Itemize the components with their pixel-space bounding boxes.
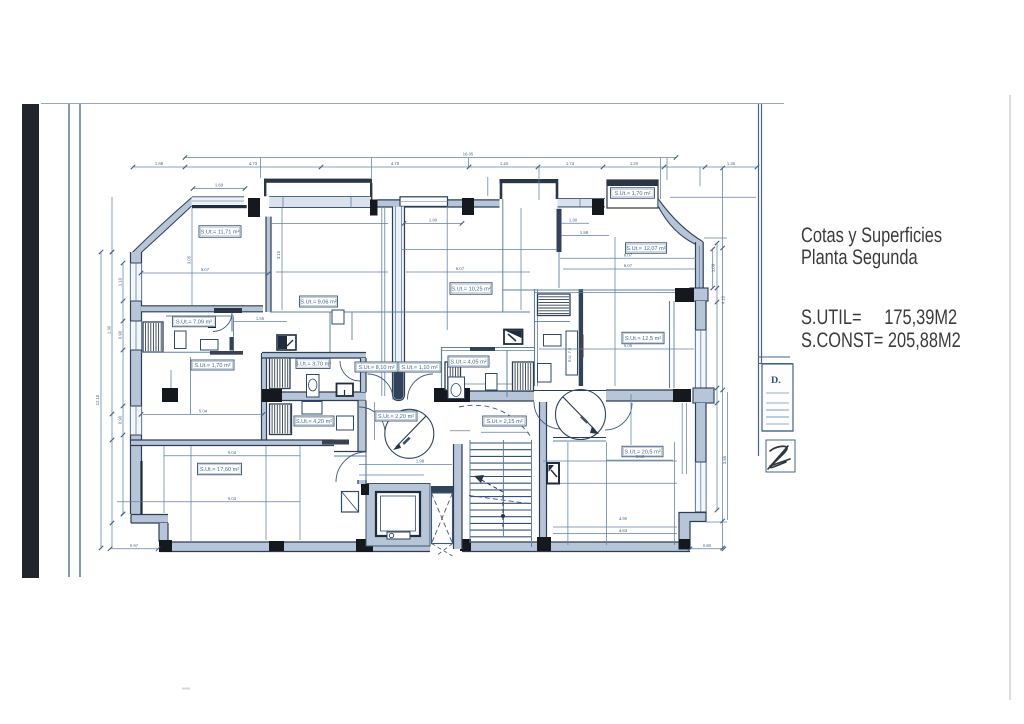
svg-text:0.97: 0.97 — [130, 543, 139, 548]
svg-text:1.08: 1.08 — [711, 263, 716, 272]
svg-text:S.Ut.= 1,70 m²: S.Ut.= 1,70 m² — [194, 363, 230, 369]
svg-text:S.Ut.= 10,25 m²: S.Ut.= 10,25 m² — [451, 287, 490, 293]
svg-text:S.Ut.= 7,09 m²: S.Ut.= 7,09 m² — [176, 320, 212, 326]
svg-text:4.90: 4.90 — [619, 516, 628, 521]
svg-text:1.55: 1.55 — [256, 316, 265, 321]
svg-text:S.Ut.= 9,06 m²: S.Ut.= 9,06 m² — [300, 300, 336, 306]
svg-text:S.Ut.= 4,05 m²: S.Ut.= 4,05 m² — [450, 360, 486, 366]
svg-text:6.07: 6.07 — [624, 263, 633, 268]
svg-text:1.98: 1.98 — [416, 459, 425, 464]
svg-text:2.92: 2.92 — [636, 454, 645, 459]
svg-text:1.60: 1.60 — [215, 183, 224, 188]
svg-text:3.95: 3.95 — [722, 455, 727, 464]
svg-text:3.15: 3.15 — [276, 250, 281, 259]
svg-text:5.04: 5.04 — [199, 409, 208, 414]
svg-text:6.07: 6.07 — [456, 266, 465, 271]
svg-text:1.74: 1.74 — [566, 161, 575, 166]
svg-text:5.07: 5.07 — [201, 267, 210, 272]
svg-text:16.05: 16.05 — [463, 152, 474, 157]
svg-text:4.63: 4.63 — [619, 528, 628, 533]
svg-text:5.04: 5.04 — [228, 450, 237, 455]
svg-text:3.05: 3.05 — [187, 255, 192, 264]
svg-text:6.07: 6.07 — [624, 252, 633, 257]
svg-text:12.10: 12.10 — [95, 394, 100, 405]
svg-text:0.90: 0.90 — [118, 415, 123, 424]
svg-text:1.90: 1.90 — [429, 218, 438, 223]
svg-text:S.Ut.= 3,70 m²: S.Ut.= 3,70 m² — [295, 362, 331, 368]
svg-text:1.30: 1.30 — [107, 325, 112, 334]
svg-text:1.20: 1.20 — [630, 161, 639, 166]
svg-text:S.Ut.= 17,60 m²: S.Ut.= 17,60 m² — [200, 467, 239, 473]
svg-text:S.Ut.= 1,10 m²: S.Ut.= 1,10 m² — [401, 365, 437, 371]
svg-text:S.Ut.= 12,5 m²: S.Ut.= 12,5 m² — [625, 336, 661, 342]
svg-text:1.98: 1.98 — [580, 230, 589, 235]
svg-text:S.Ut.= 11,71 m²: S.Ut.= 11,71 m² — [201, 230, 240, 236]
svg-text:S.Ut.= 4,20 m²: S.Ut.= 4,20 m² — [296, 419, 332, 425]
svg-text:1.30: 1.30 — [569, 218, 578, 223]
svg-text:S.Ut.= 12,07 m²: S.Ut.= 12,07 m² — [626, 246, 665, 252]
svg-text:5.05: 5.05 — [624, 343, 633, 348]
svg-text:1.40: 1.40 — [500, 161, 509, 166]
svg-text:S.Ut.= 8,10 m²: S.Ut.= 8,10 m² — [358, 365, 394, 371]
svg-text:0.90: 0.90 — [118, 330, 123, 339]
svg-text:S.Ut.= 2,15 m²: S.Ut.= 2,15 m² — [486, 419, 522, 425]
svg-text:0.80: 0.80 — [703, 543, 712, 548]
svg-text:4.10: 4.10 — [720, 295, 725, 304]
svg-text:1.10: 1.10 — [118, 277, 123, 286]
svg-text:4.73: 4.73 — [391, 161, 400, 166]
svg-text:1.98: 1.98 — [155, 161, 164, 166]
svg-text:S.Ut.= 1,70 m²: S.Ut.= 1,70 m² — [614, 191, 650, 197]
svg-text:D.: D. — [771, 375, 781, 386]
svg-text:1.35: 1.35 — [727, 161, 736, 166]
svg-text:4.73: 4.73 — [249, 161, 258, 166]
svg-text:S.Ut.= 2,20 m²: S.Ut.= 2,20 m² — [378, 414, 414, 420]
svg-text:5.04: 5.04 — [228, 496, 237, 501]
